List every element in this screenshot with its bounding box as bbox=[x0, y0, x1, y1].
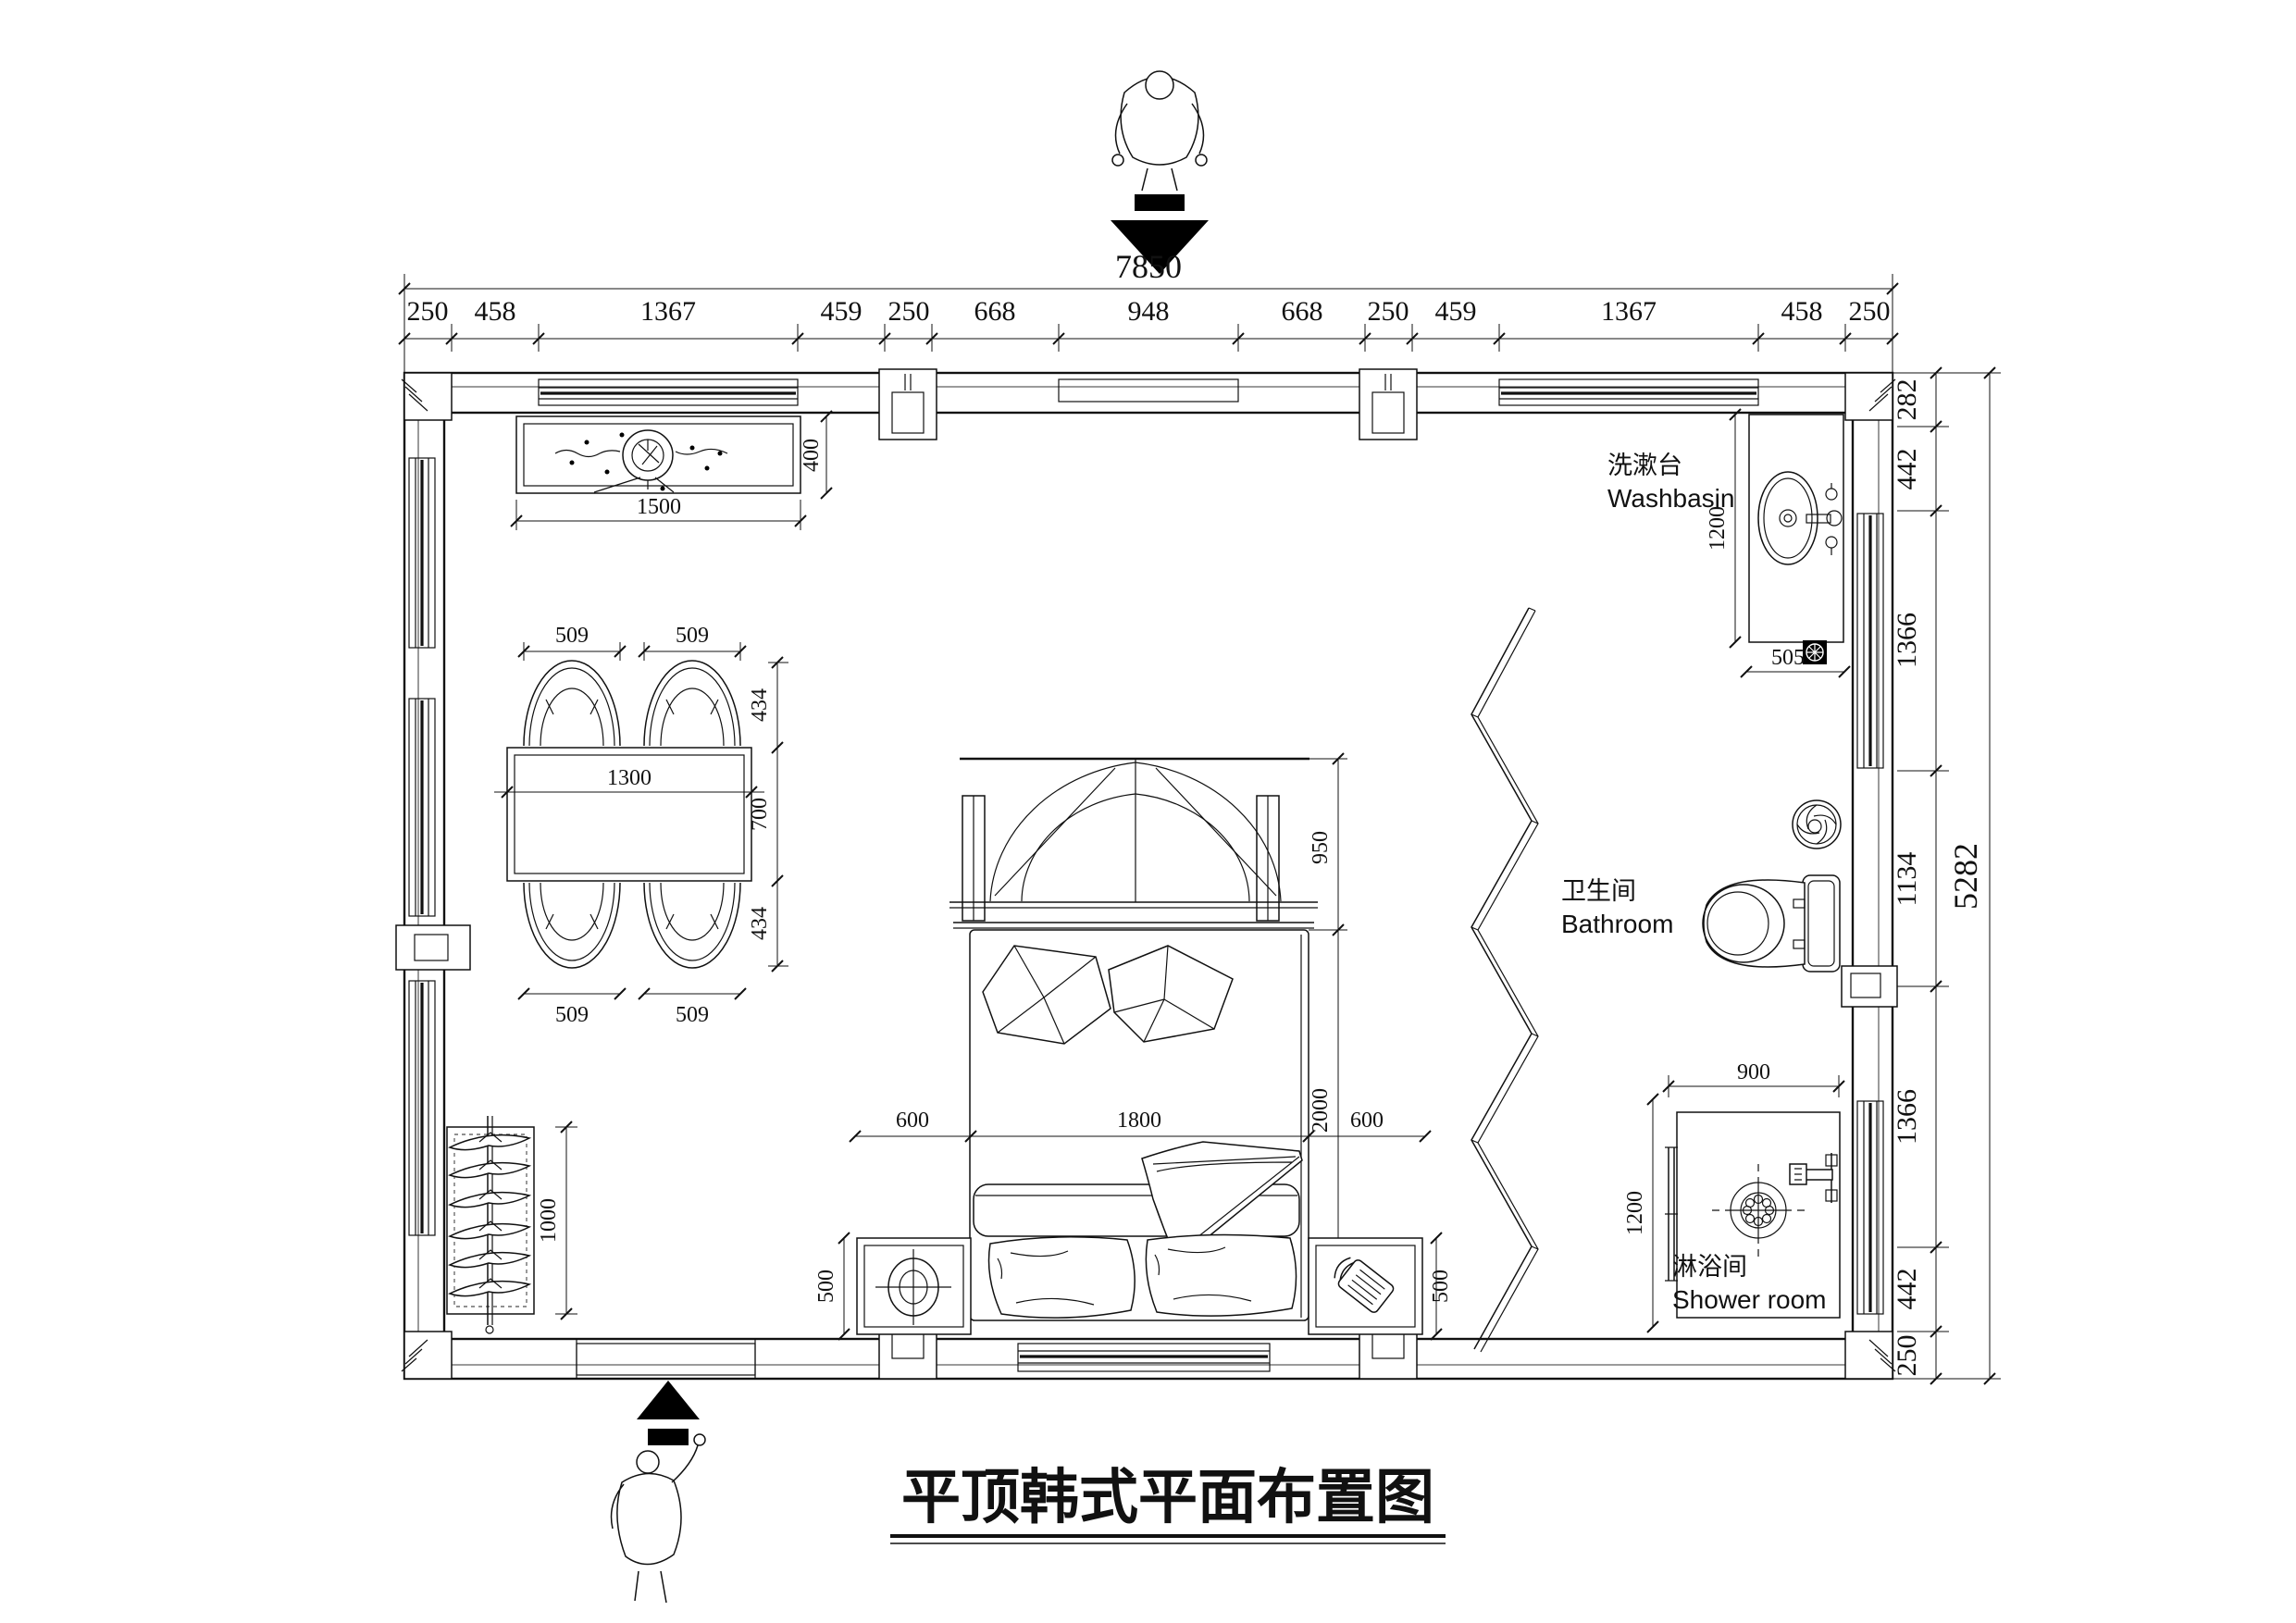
room-label-bathroom-en: Bathroom bbox=[1561, 910, 1673, 938]
dim-label: 442 bbox=[1892, 449, 1922, 490]
dim-label: 500 bbox=[1429, 1270, 1453, 1303]
window-top-right bbox=[1499, 379, 1758, 405]
dim-label: 1200 bbox=[1706, 506, 1730, 551]
dim-label: 250 bbox=[1849, 296, 1891, 327]
dim-label: 442 bbox=[1892, 1269, 1922, 1310]
entry-arrow-up-icon bbox=[637, 1381, 700, 1445]
window-right-2 bbox=[1857, 1101, 1883, 1314]
dim-label: 600 bbox=[896, 1109, 929, 1133]
dim-label: 950 bbox=[1309, 831, 1333, 864]
room-label-shower-en: Shower room bbox=[1672, 1285, 1827, 1314]
dining-chair bbox=[644, 661, 740, 746]
dim-label: 458 bbox=[1781, 296, 1823, 327]
floor-drain-round-icon bbox=[1793, 800, 1841, 849]
room-label-washbasin-en: Washbasin bbox=[1607, 484, 1734, 513]
floor-plan-canvas: 7850 250 458 1367 459 250 668 948 668 25… bbox=[0, 0, 2296, 1623]
dim-label: 1000 bbox=[537, 1198, 561, 1243]
dim-label: 434 bbox=[748, 907, 772, 940]
dim-label: 668 bbox=[974, 296, 1016, 327]
dim-label: 1366 bbox=[1892, 1089, 1922, 1145]
dim-label: 1500 bbox=[637, 495, 681, 519]
washbasin-area: 1200 505 洗漱台 Washbasin bbox=[1607, 409, 1850, 677]
dim-label: 668 bbox=[1282, 296, 1323, 327]
nightstand-left: 500 bbox=[814, 1233, 971, 1340]
dim-label: 1200 bbox=[1623, 1191, 1647, 1235]
window-right-1 bbox=[1857, 514, 1883, 768]
person-top-icon bbox=[1112, 71, 1207, 191]
toilet-icon bbox=[1703, 875, 1840, 972]
dim-label: 250 bbox=[407, 296, 449, 327]
dim-label: 900 bbox=[1737, 1060, 1770, 1084]
dim-label: 500 bbox=[814, 1270, 838, 1303]
dim-nightstand-left: 500 bbox=[814, 1233, 850, 1340]
dim-label: 948 bbox=[1128, 296, 1170, 327]
dim-label: 1367 bbox=[1601, 296, 1657, 327]
floor-drain-icon bbox=[1803, 640, 1827, 664]
window-left-1 bbox=[409, 458, 435, 648]
pillow bbox=[989, 1237, 1136, 1318]
dim-top-chain: 250 458 1367 459 250 668 948 668 250 459… bbox=[399, 296, 1898, 352]
dim-label: 7850 bbox=[1115, 248, 1182, 285]
entry-door-panel bbox=[577, 1339, 755, 1379]
dim-label: 1134 bbox=[1892, 852, 1922, 907]
dining-set: 1300 509 509 509 509 434 700 434 bbox=[494, 624, 788, 1027]
dim-label: 458 bbox=[475, 296, 516, 327]
shower-area: 900 1200 淋浴间 Shower room bbox=[1623, 1060, 1844, 1332]
dim-label: 1367 bbox=[640, 296, 696, 327]
dim-label: 1300 bbox=[607, 766, 652, 790]
dim-counter-depth: 400 bbox=[800, 411, 832, 499]
dining-table: 1300 bbox=[494, 748, 764, 881]
pillow bbox=[1146, 1234, 1296, 1316]
window-bottom bbox=[1018, 1344, 1270, 1371]
dim-label: 509 bbox=[676, 1003, 709, 1027]
dim-label: 282 bbox=[1892, 379, 1922, 421]
bed-canopy bbox=[949, 759, 1318, 928]
window-top-left bbox=[539, 379, 798, 405]
room-label-bathroom-zh: 卫生间 bbox=[1561, 877, 1636, 905]
dim-label: 509 bbox=[555, 1003, 589, 1027]
dim-nightstand-right: 500 bbox=[1429, 1233, 1453, 1340]
dim-label: 505 bbox=[1771, 646, 1805, 670]
dim-label: 700 bbox=[748, 798, 772, 831]
dim-label: 459 bbox=[821, 296, 863, 327]
dim-label: 5282 bbox=[1947, 843, 1984, 910]
folding-screen bbox=[1471, 608, 1538, 1352]
dining-chair bbox=[524, 661, 620, 746]
dim-label: 509 bbox=[555, 624, 589, 648]
dim-label: 250 bbox=[1368, 296, 1409, 327]
dim-label: 400 bbox=[800, 439, 824, 472]
person-bottom-icon bbox=[612, 1434, 706, 1603]
title-text: 平顶韩式平面布置图 bbox=[901, 1465, 1434, 1530]
dim-counter-width: 1500 bbox=[511, 495, 806, 530]
dim-label: 250 bbox=[888, 296, 930, 327]
dim-label: 1800 bbox=[1117, 1109, 1161, 1133]
counter-fixture: 1500 400 bbox=[511, 411, 832, 530]
sink-icon bbox=[1758, 472, 1842, 564]
dim-wardrobe: 1000 bbox=[537, 1121, 577, 1319]
window-left-3 bbox=[409, 981, 435, 1235]
bathroom-area: 卫生间 Bathroom bbox=[1561, 800, 1841, 972]
floor-plan-page: 7850 250 458 1367 459 250 668 948 668 25… bbox=[0, 0, 2296, 1623]
dining-chair bbox=[644, 883, 740, 968]
room-label-washbasin-zh: 洗漱台 bbox=[1607, 452, 1682, 479]
dim-label: 509 bbox=[676, 624, 709, 648]
dining-chair bbox=[524, 883, 620, 968]
dim-label: 459 bbox=[1435, 296, 1477, 327]
dim-label: 250 bbox=[1892, 1335, 1922, 1377]
wall-panel-top-center bbox=[1059, 379, 1238, 402]
nightstand-right: 500 bbox=[1309, 1233, 1453, 1340]
dim-right-chain: 282 442 1366 1134 1366 442 250 bbox=[1892, 367, 1949, 1384]
wardrobe: 1000 bbox=[447, 1116, 577, 1333]
window-left-2 bbox=[409, 699, 435, 916]
shower-head-icon bbox=[1790, 1153, 1837, 1203]
dim-label: 434 bbox=[748, 688, 772, 722]
room-label-shower-zh: 淋浴间 bbox=[1672, 1253, 1747, 1281]
dim-washbasin: 1200 505 bbox=[1706, 409, 1850, 677]
hangers bbox=[450, 1133, 529, 1296]
dim-label: 1366 bbox=[1892, 613, 1922, 668]
dim-label: 2000 bbox=[1309, 1088, 1333, 1133]
drawing-title: 平顶韩式平面布置图 bbox=[890, 1465, 1446, 1543]
dim-label: 600 bbox=[1350, 1109, 1384, 1133]
